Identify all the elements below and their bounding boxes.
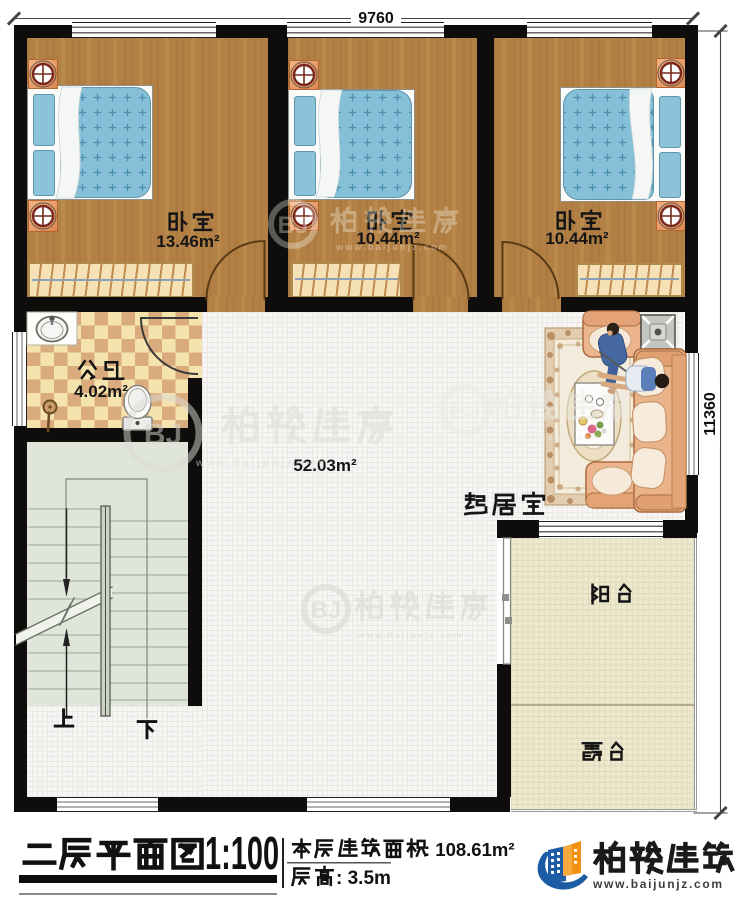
- svg-text:13.46m²: 13.46m²: [156, 232, 220, 251]
- svg-text:BJ: BJ: [278, 212, 309, 239]
- svg-text:www.baijunjz.com: www.baijunjz.com: [357, 630, 463, 640]
- svg-text:www.baijunjz.com: www.baijunjz.com: [494, 432, 600, 442]
- svg-text:BJ: BJ: [449, 397, 481, 425]
- svg-text:www.baijunjz.com: www.baijunjz.com: [335, 242, 449, 252]
- svg-text:: 108.61m²: : 108.61m²: [424, 839, 515, 860]
- svg-text:www.baijunjz.com: www.baijunjz.com: [195, 458, 330, 469]
- svg-text:www.baijunjz.com: www.baijunjz.com: [592, 877, 724, 891]
- svg-text:4.02m²: 4.02m²: [74, 382, 128, 401]
- svg-text:1:100: 1:100: [205, 828, 279, 879]
- svg-text:BJ: BJ: [311, 597, 342, 624]
- svg-text:9760: 9760: [358, 10, 394, 27]
- svg-text:BJ: BJ: [144, 418, 182, 451]
- svg-text:11360: 11360: [702, 392, 719, 436]
- svg-text:: 3.5m: : 3.5m: [336, 868, 391, 889]
- svg-text:10.44m²: 10.44m²: [545, 229, 609, 248]
